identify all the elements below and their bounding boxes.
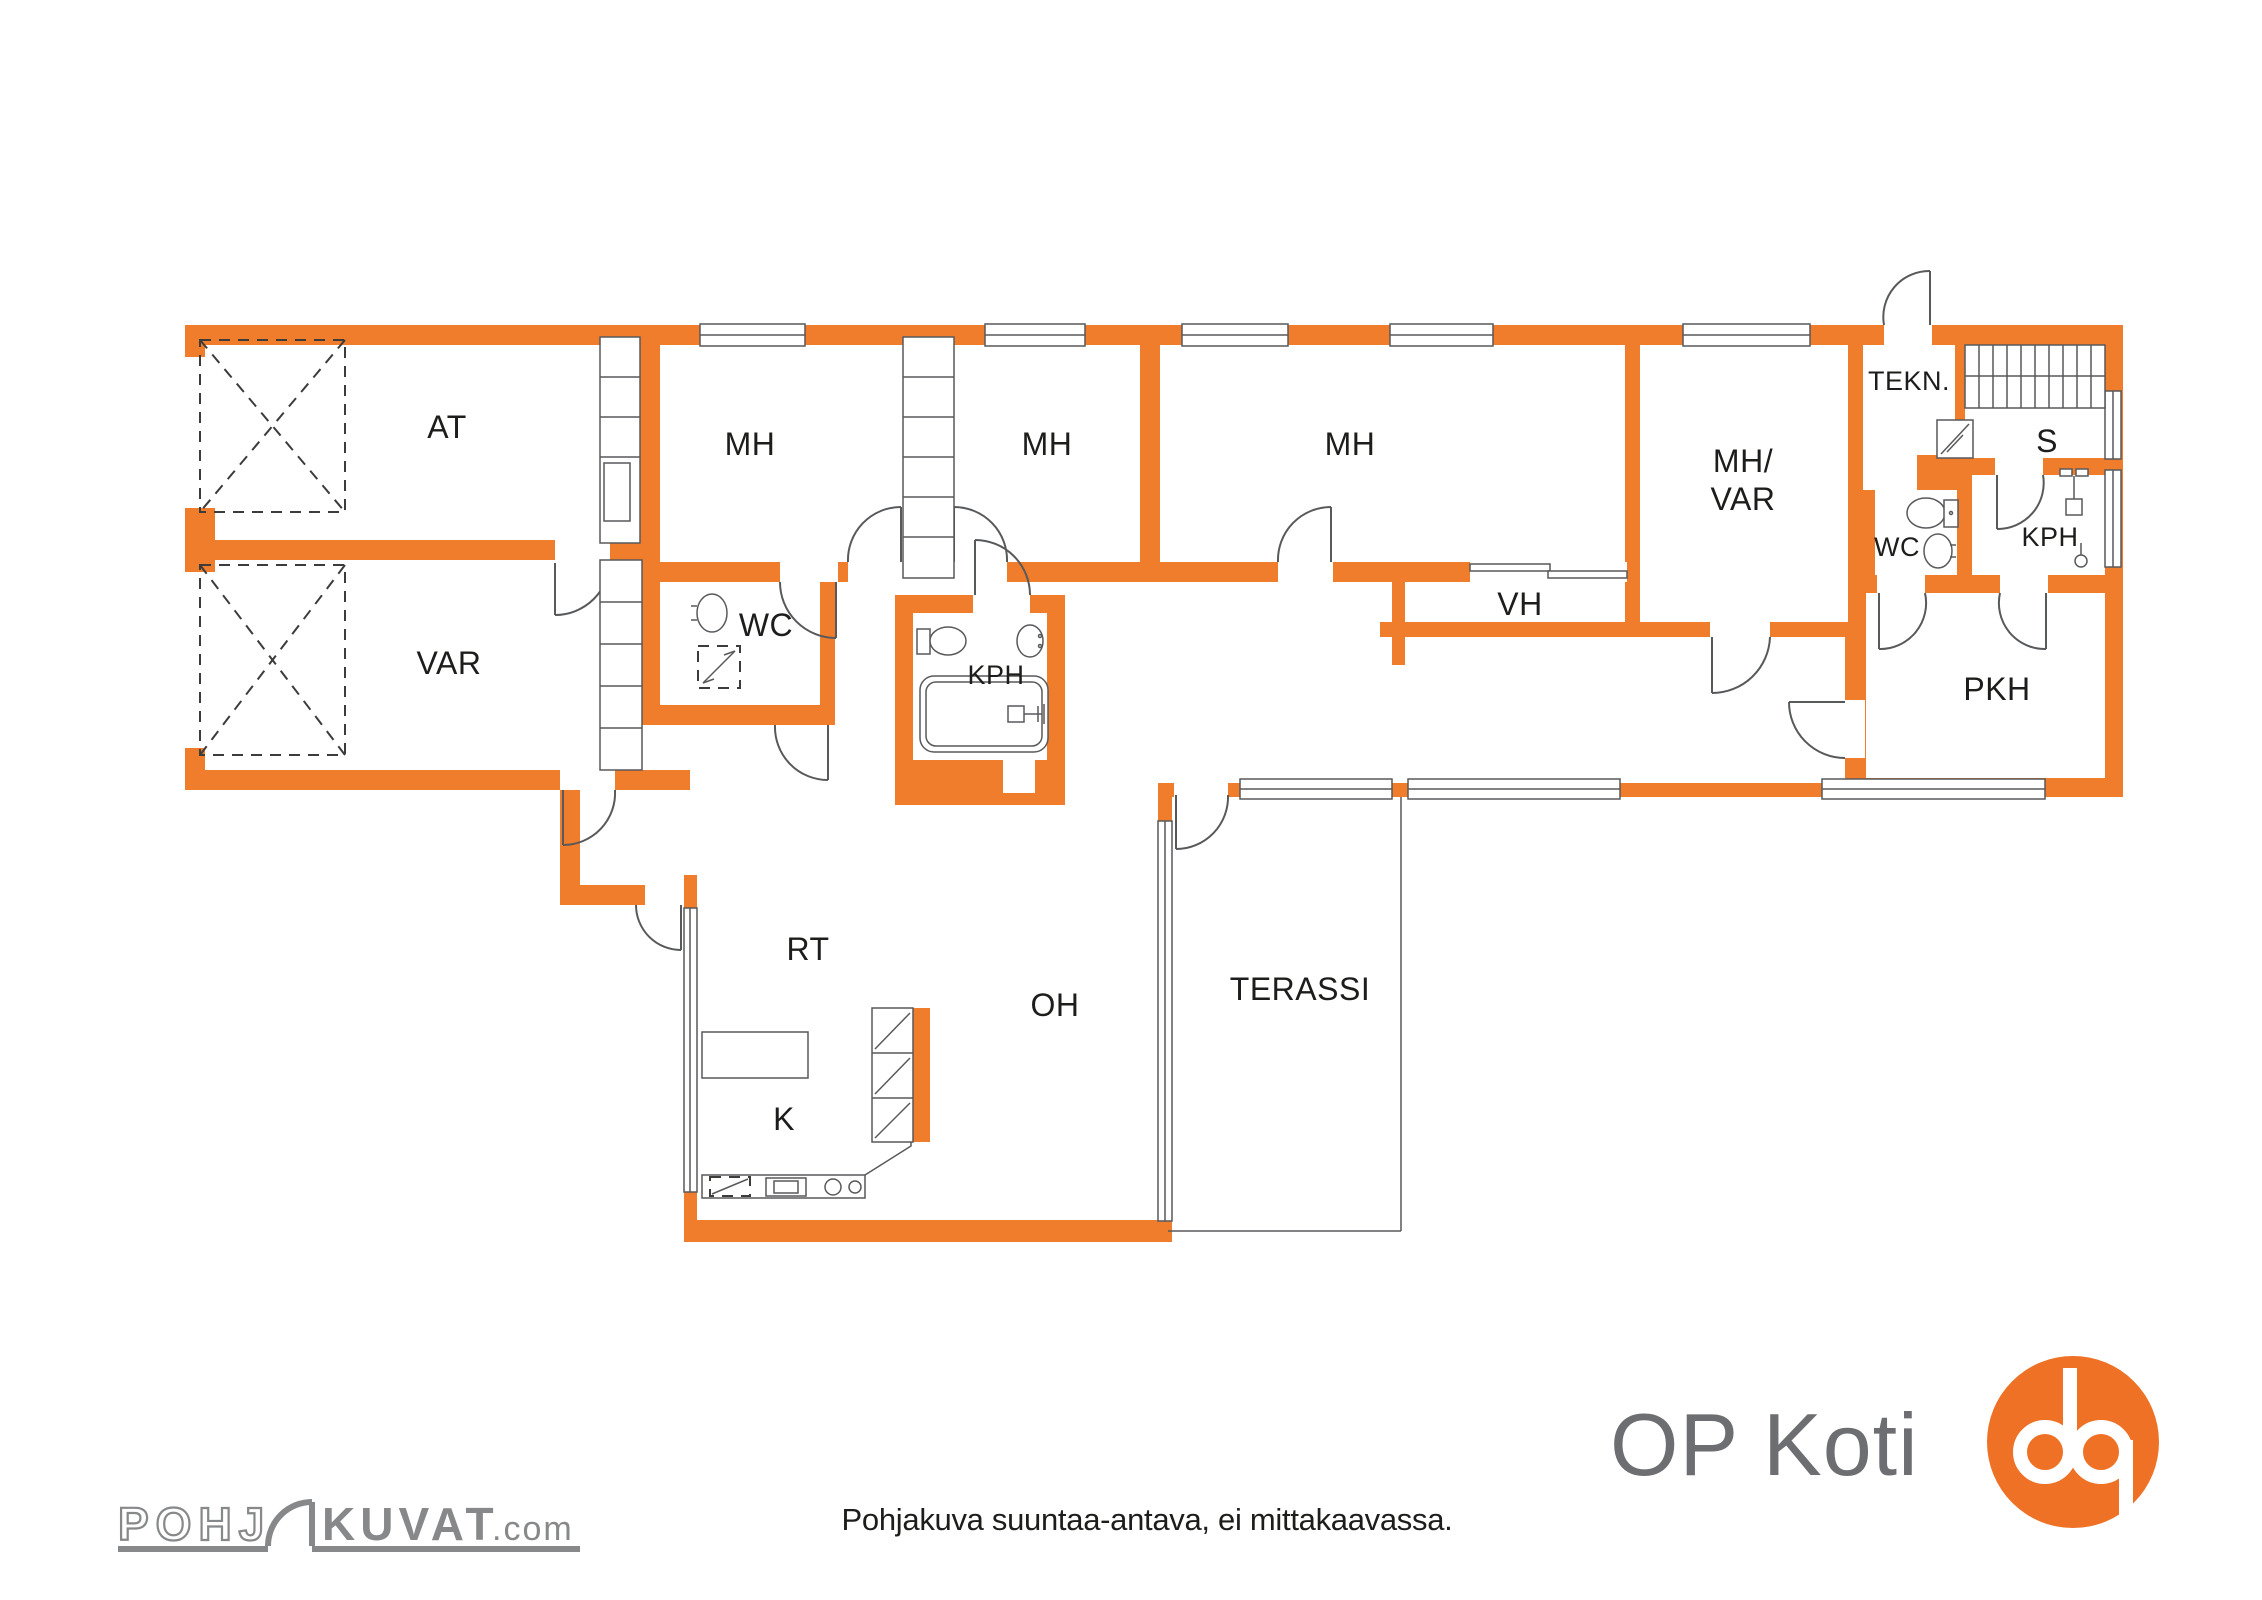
window (1408, 779, 1620, 799)
watermark-pohj: POHJ (118, 1498, 271, 1550)
window (985, 324, 1085, 346)
window (2105, 470, 2121, 567)
disclaimer-text: Pohjakuva suuntaa-antava, ei mittakaavas… (842, 1502, 1453, 1537)
toilet-icon (917, 627, 966, 655)
room-label-rt: RT (786, 931, 829, 967)
garage-door-marker (200, 340, 345, 512)
closet (903, 337, 954, 578)
room-labels: AT MH MH MH MH/ VAR TEKN. S WC KPH VH VA… (417, 366, 2079, 1137)
terrace-outline (1168, 797, 1401, 1231)
room-label-tekn: TEKN. (1868, 366, 1950, 396)
window (1822, 779, 2045, 799)
window-glass-wall (1158, 821, 1172, 1221)
room-label-sauna: S (2036, 423, 2058, 459)
room-label-pkh: PKH (1963, 671, 2030, 707)
room-label-oh: OH (1031, 987, 1080, 1023)
electric-panel-icon (698, 646, 740, 688)
door-arc (954, 507, 1007, 562)
room-label-mh-var-2: VAR (1711, 481, 1776, 517)
closet (600, 560, 642, 770)
floorplan-drawing: AT MH MH MH MH/ VAR TEKN. S WC KPH VH VA… (0, 0, 2262, 1600)
room-label-wc-mid: WC (739, 607, 793, 643)
closet (600, 337, 640, 543)
watermark-com: .com (492, 1510, 574, 1548)
door-arc (1883, 271, 1930, 325)
room-label-var: VAR (417, 645, 482, 681)
door-arc (1278, 507, 1331, 562)
door-arc (848, 507, 901, 562)
sink-icon (691, 594, 727, 632)
garage-door-marker (200, 565, 345, 755)
room-label-mh1: MH (725, 426, 776, 462)
room-label-mh3: MH (1325, 426, 1376, 462)
window (1683, 324, 1810, 346)
pohjakuvat-logo: POHJ KUVAT .com (118, 1498, 580, 1552)
watermark-kuvat: KUVAT (322, 1498, 499, 1550)
op-koti-wordmark: OP Koti (1610, 1395, 1919, 1494)
window (1390, 324, 1493, 346)
room-label-k: K (773, 1101, 795, 1137)
toilet-icon (1907, 498, 1958, 528)
room-label-mh-var-1: MH/ (1713, 443, 1773, 479)
room-label-wc-right: WC (1874, 532, 1920, 562)
kitchen-island (702, 1032, 808, 1078)
room-label-mh2: MH (1022, 426, 1073, 462)
fridge-freezer-icon (872, 1008, 913, 1142)
room-label-vh: VH (1497, 586, 1542, 622)
sink-icon (1017, 625, 1043, 657)
window (700, 324, 805, 346)
room-label-kph-right: KPH (2021, 522, 2078, 552)
watermark-underline (118, 1546, 268, 1552)
door-arc (1176, 795, 1228, 849)
room-label-kph-mid: KPH (967, 660, 1024, 690)
door-arc (1789, 702, 1845, 758)
window (1240, 779, 1392, 799)
floorplan-page: AT MH MH MH MH/ VAR TEKN. S WC KPH VH VA… (0, 0, 2262, 1600)
kitchen-counter (702, 1142, 911, 1198)
window-glass-wall (684, 908, 697, 1192)
watermark-underline (312, 1546, 580, 1552)
door-symbol-icon (268, 1502, 312, 1546)
window (1182, 324, 1288, 346)
op-koti-logo: OP Koti (1610, 1356, 2159, 1528)
window (2105, 391, 2121, 459)
room-label-terassi: TERASSI (1230, 971, 1370, 1007)
stairs (1965, 345, 2105, 408)
sauna-stove-icon (1937, 420, 1973, 458)
door-arc (775, 725, 828, 780)
door-arc (636, 905, 681, 950)
room-label-at: AT (427, 409, 467, 445)
door-arc (1712, 637, 1770, 693)
op-logo-icon (1987, 1356, 2159, 1528)
